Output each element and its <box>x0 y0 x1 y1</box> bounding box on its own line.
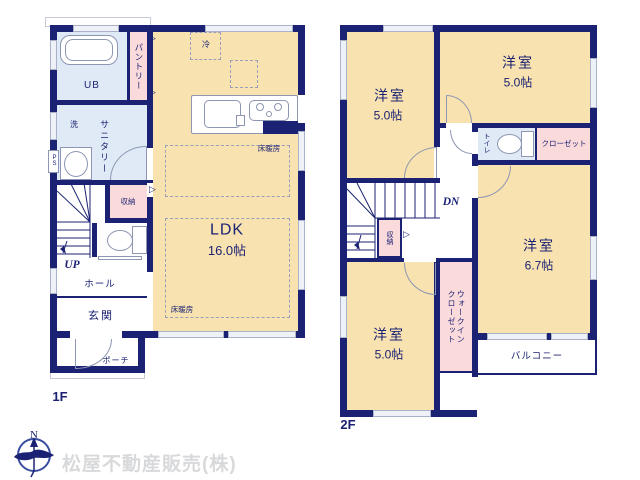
bedroom-2-name: 洋室 <box>502 56 534 71</box>
window <box>590 236 597 280</box>
toilet-label: トイレ <box>482 133 490 154</box>
burner-icon <box>256 103 264 111</box>
door-leaf <box>446 95 447 123</box>
pipe-space-label: PS <box>51 155 58 167</box>
bedroom-4-size: 5.0帖 <box>375 349 404 362</box>
window <box>73 25 119 32</box>
room-label-hall: ホール <box>84 280 116 290</box>
room-label-entrance: 玄関 <box>88 311 114 323</box>
window <box>228 331 296 338</box>
compass-north-label: N <box>30 429 38 441</box>
door-swing-marker: ▷ <box>149 185 156 194</box>
wall-segment <box>147 197 153 272</box>
window <box>551 333 588 340</box>
washbasin-bowl <box>64 151 88 177</box>
door-leaf <box>435 263 436 295</box>
storage-label-1f: 収納 <box>121 198 136 206</box>
room-label-ub: UB <box>84 81 100 92</box>
door-opening <box>147 148 153 180</box>
floorplan-image: ▷ ▷ ▷ UB パントリー 洗 サニタリー PS 収納 UP ホール 玄関 ポ… <box>0 0 640 480</box>
window <box>590 58 597 108</box>
window <box>205 25 293 32</box>
window <box>340 296 347 338</box>
stairs-up-label: UP <box>64 259 79 271</box>
burner-icon <box>274 103 282 111</box>
window <box>487 333 547 340</box>
bedroom-1-name: 洋室 <box>374 89 406 104</box>
kitchen-counter-return <box>263 121 298 134</box>
wall-segment <box>472 160 590 165</box>
room-label-sanitary: サニタリー <box>99 120 109 175</box>
door-swing-marker: ▷ <box>149 88 156 97</box>
door-opening <box>446 123 472 128</box>
hall-entrance-divider <box>57 296 153 298</box>
door-opening <box>404 258 436 262</box>
window <box>158 331 224 338</box>
window <box>298 220 305 290</box>
door-arc <box>450 130 472 154</box>
wall-segment <box>57 100 147 105</box>
entrance-door-opening <box>70 331 122 338</box>
floor1-label: 1F <box>52 390 67 404</box>
floor-heating-label: 床暖房 <box>171 306 194 314</box>
wall-segment <box>472 123 590 128</box>
room-label-porch: ポーチ <box>103 357 130 365</box>
wall-segment <box>440 371 472 373</box>
ldk-size: 16.0帖 <box>208 244 246 258</box>
compass-icon: N <box>10 424 58 478</box>
window <box>298 131 305 171</box>
room-label-pantry: パントリー <box>133 43 143 91</box>
stairs-up-icon <box>57 183 147 260</box>
bedroom-3-size: 6.7帖 <box>525 260 554 273</box>
stairs-down-icon <box>347 183 440 258</box>
bedroom-1-size: 5.0帖 <box>374 110 403 123</box>
window <box>50 268 57 294</box>
washer-label: 洗 <box>70 121 78 129</box>
toilet-tank <box>521 131 534 157</box>
porch-step-outline <box>50 372 145 379</box>
door-leaf <box>436 147 437 178</box>
door-swing-marker: ▷ <box>149 34 156 43</box>
door-leaf <box>146 146 147 180</box>
bathtub-inner <box>65 39 113 61</box>
stairs-down-label: DN <box>443 196 460 208</box>
porch-wall-bottom <box>50 366 145 373</box>
window <box>373 410 431 417</box>
fridge-label: 冷 <box>202 41 210 49</box>
ldk-name: LDK <box>210 223 244 240</box>
closet-label: クローゼット <box>542 140 587 148</box>
window <box>340 40 347 100</box>
walk-in-closet-label: ウォークインクローゼット <box>447 286 465 348</box>
company-name: 松屋不動産販売(株) <box>62 449 237 476</box>
bedroom-4-name: 洋室 <box>373 328 405 343</box>
door-leaf <box>75 339 76 369</box>
floor-heating-label: 床暖房 <box>258 145 281 153</box>
wall-segment <box>535 128 537 160</box>
burner-icon <box>266 111 272 117</box>
floor2-label: 2F <box>340 418 355 432</box>
window <box>383 25 433 32</box>
wall-segment <box>127 32 130 100</box>
bedroom-2-size: 5.0帖 <box>504 77 533 90</box>
toilet-bowl <box>497 134 522 154</box>
storage-label-2f: 収納 <box>385 231 393 245</box>
passage-opening <box>147 272 153 331</box>
balcony-label: バルコニー <box>511 352 563 362</box>
floor2-wall-top <box>340 25 597 32</box>
door-swing-marker: ▷ <box>403 230 410 239</box>
kitchen-faucet <box>236 115 245 126</box>
counter-wall-gap <box>298 95 305 123</box>
door-opening <box>472 132 478 154</box>
window <box>50 112 57 140</box>
window <box>50 40 57 70</box>
bedroom-3-name: 洋室 <box>523 239 555 254</box>
cupboard-space <box>230 60 258 88</box>
